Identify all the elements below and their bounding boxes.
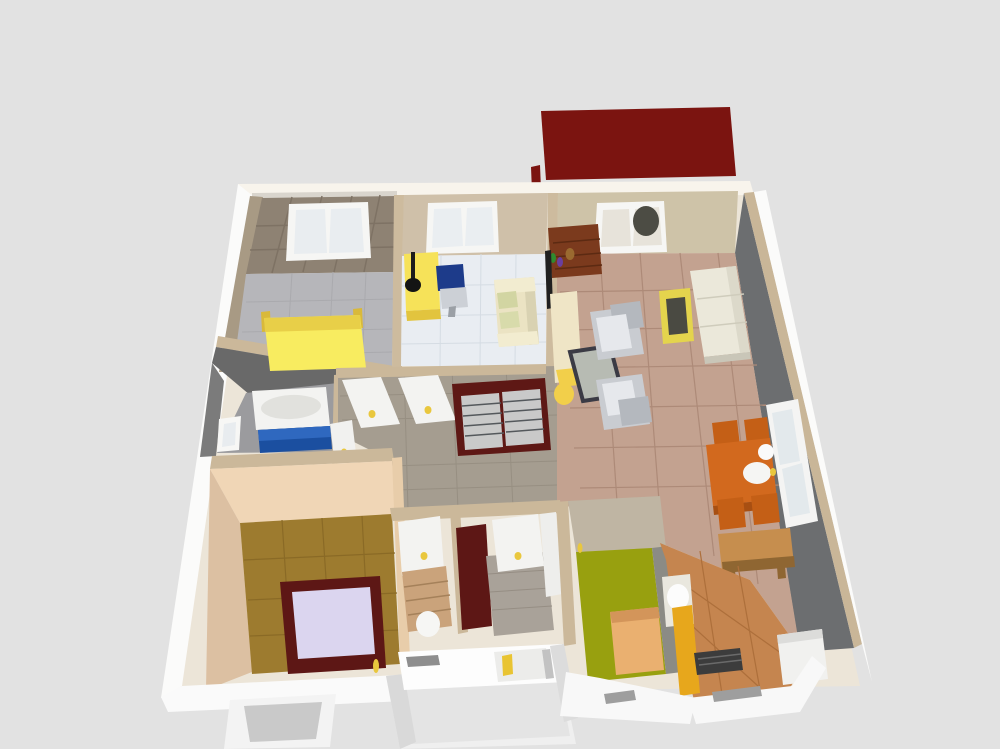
office-desk-lamp-stem	[411, 252, 415, 281]
living-armchair-2-back	[618, 396, 652, 426]
hall-wardrobe-door-right	[502, 389, 544, 446]
office-chair-leg	[448, 306, 456, 317]
greenroom-wall-north	[568, 496, 666, 552]
living-armchair-1-cushion	[596, 314, 632, 352]
greenroom-door-handle	[578, 543, 583, 553]
dining-chair[interactable]	[751, 493, 780, 525]
closet-arch	[416, 611, 440, 637]
living-lamp[interactable]	[554, 383, 574, 405]
kitchen-sideboard-leg	[777, 566, 786, 579]
porch-entry-door-handle	[502, 654, 513, 676]
dining-table-plate	[743, 462, 771, 484]
hall-door-1-handle	[369, 410, 376, 418]
living-window-reflection	[633, 206, 659, 236]
living-dresser[interactable]	[548, 224, 602, 278]
stoop-inner	[244, 702, 322, 742]
office-desk-lamp[interactable]	[405, 278, 421, 292]
dining-table-pitcher	[758, 444, 774, 460]
wc-door-red[interactable]	[456, 524, 492, 630]
bedroom1-bed-headboard	[264, 315, 361, 332]
living-door-right-handle	[770, 468, 776, 476]
dining-chair[interactable]	[717, 497, 746, 530]
porch-entry-door[interactable]	[494, 648, 550, 682]
closet-door[interactable]	[398, 516, 444, 576]
bedroom2-door-handle	[373, 659, 379, 673]
hall-wardrobe-door-left	[461, 393, 503, 450]
closet-door-handle	[421, 552, 428, 560]
bathroom-window-pane	[222, 422, 236, 447]
bedroom2-wall-north	[210, 461, 397, 523]
office-sofa-pillow	[497, 291, 518, 309]
floorplan-stage	[0, 0, 1000, 749]
floorplan-3d-view[interactable]	[0, 0, 1000, 749]
office-chair-back[interactable]	[436, 264, 465, 291]
wc-door-handle	[515, 552, 522, 560]
bedroom2-bed-mattress	[292, 587, 375, 659]
living-coffee-table-glass	[666, 297, 688, 335]
porch-vent	[406, 655, 440, 667]
wc-door[interactable]	[492, 514, 544, 572]
office-sofa-pillow	[499, 311, 520, 329]
office-desk-front	[406, 309, 441, 321]
office-window-pane	[465, 207, 494, 246]
roof-panel[interactable]	[541, 107, 736, 180]
dresser-item-keg	[566, 248, 575, 260]
bedroom1-window-pane	[294, 209, 327, 254]
office-chair-seat	[440, 287, 468, 309]
office-window-pane	[432, 208, 463, 248]
living-window-pane	[601, 209, 631, 247]
bedroom1-window-pane	[329, 208, 364, 253]
dresser-item-bottle	[557, 257, 563, 267]
porch-floor	[404, 682, 570, 744]
hall-door-2-handle	[425, 406, 432, 414]
